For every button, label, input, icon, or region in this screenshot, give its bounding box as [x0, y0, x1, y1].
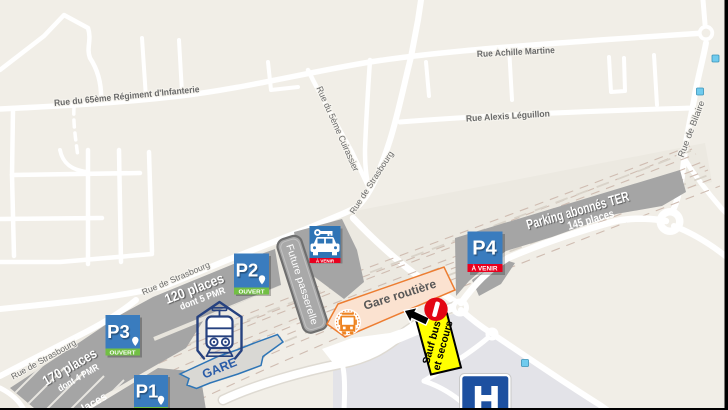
svg-text:P3: P3 [107, 321, 130, 342]
svg-text:À VENIR: À VENIR [472, 265, 499, 272]
svg-text:P4: P4 [472, 238, 497, 260]
svg-text:P2: P2 [236, 260, 259, 281]
svg-text:P1: P1 [136, 381, 159, 402]
svg-text:OUVERT: OUVERT [239, 289, 265, 295]
svg-text:OUVERT: OUVERT [110, 351, 136, 357]
svg-text:À VENIR: À VENIR [316, 257, 335, 263]
